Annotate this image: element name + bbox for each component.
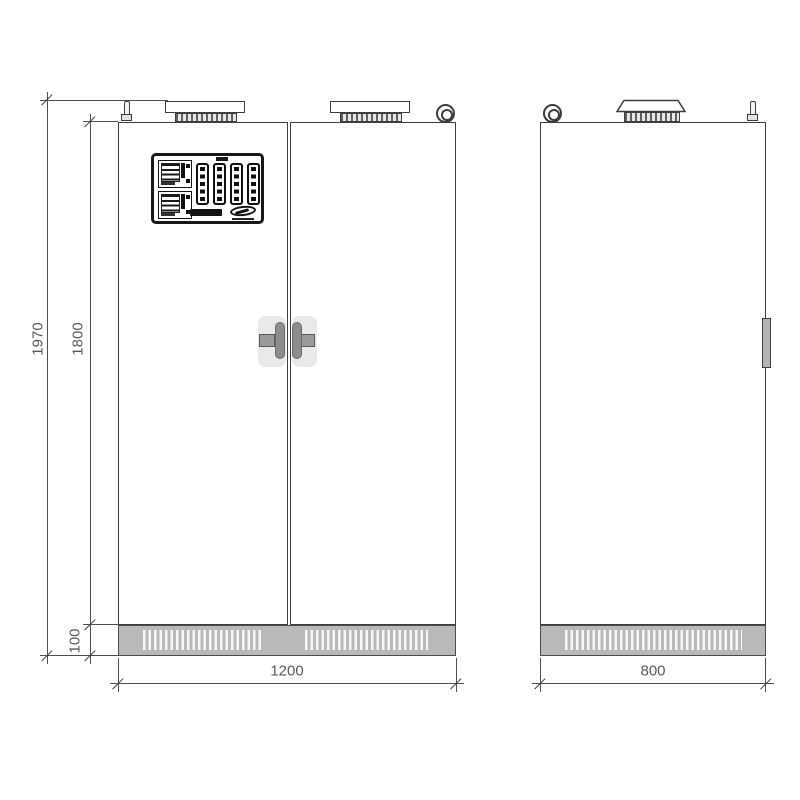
brand-logo-left	[190, 209, 222, 216]
lifting-eye-icon	[436, 104, 455, 123]
meter-slot-icon	[181, 194, 185, 209]
dim-label-front-width: 1200	[270, 663, 303, 680]
bargraph-segments-icon	[251, 167, 256, 201]
earth-pin-stem	[124, 101, 130, 115]
dim-label-total-height: 1970	[30, 322, 47, 355]
bargraph-display-1	[196, 163, 209, 205]
meter-button-icon	[186, 164, 190, 168]
door-handle-left	[275, 322, 285, 359]
brand-logo-swoosh-icon	[235, 208, 249, 215]
roof-fan-left-cap	[165, 101, 245, 113]
extension-line	[40, 655, 118, 656]
side-body	[540, 122, 766, 625]
earth-pin-flange	[121, 114, 132, 121]
dim-line	[532, 683, 774, 684]
meter-button-icon	[186, 195, 190, 199]
dim-label-body-height: 1800	[70, 322, 87, 355]
extension-line	[765, 658, 766, 692]
roof-fan-cowl	[616, 99, 686, 113]
lifting-eye-icon	[543, 104, 562, 123]
lifting-eye-hole	[441, 109, 453, 121]
bargraph-display-4	[247, 163, 260, 205]
side-plinth	[540, 625, 766, 656]
meter-label-strip	[161, 213, 175, 216]
bargraph-display-2	[213, 163, 226, 205]
roof-fan-right-cap	[330, 101, 410, 113]
meter-module-bottom	[158, 191, 192, 219]
extension-line	[118, 658, 119, 692]
bargraph-segments-icon	[217, 167, 222, 201]
handle-latch-right	[300, 334, 315, 347]
extension-line	[456, 658, 457, 692]
handle-latch-left	[259, 334, 275, 347]
meter-screen-icon	[161, 194, 180, 213]
dim-label-plinth-height: 100	[67, 628, 84, 653]
bargraph-segments-icon	[200, 167, 205, 201]
front-plinth	[118, 625, 456, 656]
roof-fan-side-fins-icon	[624, 112, 680, 122]
meter-screen-icon	[161, 163, 180, 182]
door-handle-right	[292, 322, 302, 359]
dim-line	[90, 617, 91, 664]
bargraph-segments-icon	[234, 167, 239, 201]
dim-line	[47, 92, 48, 664]
dim-line	[90, 114, 91, 634]
side-door-handle	[762, 318, 771, 368]
extension-line	[40, 100, 168, 101]
front-right-door	[290, 122, 456, 625]
roof-fan-left-fins-icon	[175, 113, 237, 122]
dim-line	[110, 683, 464, 684]
vent-slots-icon	[143, 630, 263, 650]
lifting-eye-hole	[548, 109, 560, 121]
meter-slot-icon	[181, 163, 185, 178]
drawing-canvas: 1970 1800 100 1200 800	[0, 0, 800, 800]
brand-logo-underline	[232, 218, 254, 220]
dim-label-side-depth: 800	[640, 663, 665, 680]
control-panel	[151, 153, 264, 224]
brand-logo-right	[230, 205, 257, 218]
meter-module-top	[158, 160, 192, 188]
roof-fan-right-fins-icon	[340, 113, 402, 122]
meter-button-icon	[186, 179, 190, 183]
meter-label-strip	[161, 182, 175, 185]
earth-pin-stem	[750, 101, 756, 115]
extension-line	[540, 658, 541, 692]
vent-slots-icon	[305, 630, 428, 650]
vent-slots-icon	[565, 630, 742, 650]
panel-top-tab	[216, 157, 228, 161]
fan-cowl-icon	[616, 99, 686, 113]
earth-pin-flange	[747, 114, 758, 121]
bargraph-display-3	[230, 163, 243, 205]
